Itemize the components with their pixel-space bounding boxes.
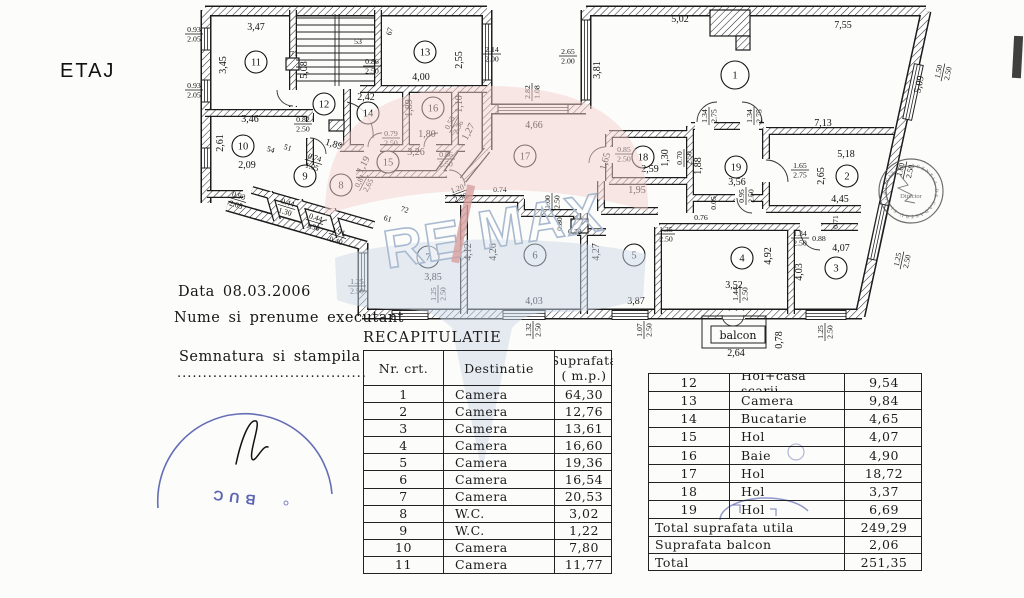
dimension-label: 0.952.50 (737, 187, 756, 205)
cell-destination: Camera (443, 454, 554, 470)
svg-text:3,47: 3,47 (247, 22, 265, 33)
svg-text:5,18: 5,18 (837, 149, 855, 160)
dimension-label: 2,64 (727, 348, 745, 359)
svg-text:11: 11 (251, 58, 261, 69)
dimension-label: 1.652.75 (791, 161, 809, 180)
wall-notch (736, 36, 750, 50)
dimension-label: 5,08 (299, 61, 310, 79)
cell-destination: Camera (443, 403, 554, 419)
dimension-label: 1,30 (660, 149, 671, 167)
cell-destination: W.C. (443, 523, 554, 539)
table-row: 15 Hol 4,07 (649, 428, 921, 446)
svg-text:1.44: 1.44 (731, 287, 740, 301)
dimension-label: 51 (283, 142, 293, 153)
dimension-label: 0.932.05 (185, 25, 203, 44)
dimension-label: 3,45 (218, 56, 229, 74)
table-row: 8 W.C. 3,02 (364, 505, 611, 522)
cell-number: 4 (364, 437, 443, 453)
dimension-label: 4,00 (412, 72, 430, 83)
table-row: 18 Hol 3,37 (649, 483, 921, 501)
dimension-label: 1.252.50 (891, 250, 913, 271)
svg-text:0.86: 0.86 (365, 57, 379, 66)
cell-number: 11 (364, 557, 443, 573)
table-row: 10 Camera 7,80 (364, 539, 611, 556)
cell-area: 16,60 (554, 437, 613, 453)
cell-number: 16 (649, 447, 729, 464)
dimension-label: 1.342.75 (700, 107, 719, 125)
svg-text:2.75: 2.75 (755, 109, 764, 123)
svg-text:3,56: 3,56 (728, 177, 746, 188)
cell-total-value: 2,06 (844, 537, 923, 553)
annex-table: 12 Hol+casa scarii 9,54 13 Camera 9,84 1… (648, 373, 922, 571)
svg-text:Director: Director (900, 193, 922, 200)
cell-area: 7,80 (554, 540, 613, 556)
dimension-label: 1.072.50 (635, 321, 654, 339)
table-row: 9 W.C. 1,22 (364, 522, 611, 539)
svg-text:2.75: 2.75 (793, 171, 807, 180)
dimension-label: 5,09 (912, 75, 926, 94)
svg-text:2.50: 2.50 (826, 325, 835, 339)
dimension-label: 4,07 (832, 243, 850, 254)
dimension-label: 2,09 (238, 160, 256, 171)
svg-text:3,45: 3,45 (218, 56, 229, 74)
cell-number: 15 (649, 428, 729, 445)
cell-number: 13 (649, 392, 729, 409)
svg-text:2.50: 2.50 (793, 239, 807, 248)
svg-text:2.05: 2.05 (187, 35, 201, 44)
svg-text:51: 51 (283, 142, 293, 153)
svg-text:BUC: BUC (206, 487, 256, 509)
dimension-label: 4,92 (763, 247, 774, 265)
svg-text:4,45: 4,45 (831, 194, 849, 205)
signature-dots: ..................................... (177, 366, 367, 381)
table-row: 2 Camera 12,76 (364, 402, 611, 419)
dimension-label: 0.88 (812, 234, 826, 243)
total-row: Total suprafata utila 249,29 (649, 519, 921, 536)
svg-text:13: 13 (420, 48, 431, 59)
svg-text:4,07: 4,07 (832, 243, 850, 254)
recap-table: Nr. crt. Destinatie Suprafata ( m.p.) 1 … (363, 350, 612, 574)
dimension-label: 54 (266, 144, 276, 155)
cell-destination: Baie (729, 447, 844, 464)
svg-text:2.14: 2.14 (485, 45, 499, 54)
svg-text:0.93: 0.93 (187, 81, 201, 90)
svg-text:2.00: 2.00 (561, 57, 575, 66)
dimension-label: 71 (290, 49, 298, 58)
header-suprafata-line1: Suprafata (554, 353, 613, 368)
cell-number: 1 (364, 386, 443, 402)
svg-text:1.34: 1.34 (793, 229, 807, 238)
svg-text:7,13: 7,13 (814, 118, 832, 129)
svg-text:3,46: 3,46 (241, 114, 259, 125)
dimension-label: 1.502.50 (932, 62, 954, 83)
dimension-label: 2,61 (215, 134, 226, 152)
svg-text:3,81: 3,81 (592, 61, 603, 79)
svg-text:5,02: 5,02 (671, 14, 689, 25)
dimension-label: 5,18 (837, 149, 855, 160)
svg-text:12: 12 (319, 100, 330, 111)
cell-number: 19 (649, 501, 729, 518)
table-row: 3 Camera 13,61 (364, 419, 611, 436)
room-number-12: 12 (313, 93, 335, 115)
cell-area: 1,22 (554, 523, 613, 539)
dimension-label: 5,02 (671, 14, 689, 25)
cell-number: 12 (649, 374, 729, 391)
cell-destination: Camera (443, 557, 554, 573)
svg-text:53: 53 (354, 37, 362, 46)
dimension-label: 3,46 (241, 114, 259, 125)
table-row: 6 Camera 16,54 (364, 470, 611, 487)
svg-text:54: 54 (266, 144, 276, 155)
svg-text:19: 19 (731, 163, 742, 174)
handwritten-signature (236, 421, 268, 464)
cell-area: 13,61 (554, 420, 613, 436)
dimension-label: 1.342.50 (791, 229, 809, 248)
dimension-label: 1.322.50 (524, 321, 543, 339)
svg-text:4,00: 4,00 (412, 72, 430, 83)
cell-area: 19,36 (554, 454, 613, 470)
room-number-13: 13 (414, 41, 436, 63)
cell-number: 7 (364, 489, 443, 505)
svg-text:2,61: 2,61 (215, 134, 226, 152)
cell-number: 5 (364, 454, 443, 470)
cell-area: 12,76 (554, 403, 613, 419)
cell-destination: Bucatarie (729, 410, 844, 427)
svg-text:1.65: 1.65 (793, 161, 807, 170)
svg-text:2.50: 2.50 (741, 287, 750, 301)
svg-text:2.50: 2.50 (645, 323, 654, 337)
svg-text:4,92: 4,92 (763, 247, 774, 265)
svg-text:0.82: 0.82 (296, 115, 310, 124)
annex-table-body: 12 Hol+casa scarii 9,54 13 Camera 9,84 1… (649, 374, 921, 519)
cell-destination: Camera (443, 489, 554, 505)
cell-number: 6 (364, 471, 443, 487)
svg-text:4,03: 4,03 (794, 263, 805, 281)
svg-text:2,55: 2,55 (454, 51, 465, 69)
dimension-label: 4,45 (831, 194, 849, 205)
dimension-label: 53 (354, 37, 362, 46)
cell-area: 4,07 (844, 428, 923, 445)
svg-text:0.05: 0.05 (709, 196, 718, 210)
total-row: Total 251,35 (649, 554, 921, 570)
cell-area: 16,54 (554, 471, 613, 487)
dimension-label: 1.442.50 (731, 285, 750, 303)
cell-destination: Camera (443, 420, 554, 436)
dimension-label: 2,42 (357, 92, 375, 103)
cell-destination: Camera (443, 471, 554, 487)
svg-text:9: 9 (302, 172, 307, 183)
room-number-11: 11 (245, 51, 267, 73)
table-row: 17 Hol 18,72 (649, 465, 921, 483)
table-row: 16 Baie 4,90 (649, 447, 921, 465)
cell-total-label: Total (649, 554, 844, 570)
cell-area: 9,84 (844, 392, 923, 409)
cell-area: 11,77 (554, 557, 613, 573)
svg-text:2.50: 2.50 (942, 66, 954, 81)
cell-destination: Camera (443, 437, 554, 453)
svg-text:2.50: 2.50 (659, 235, 673, 244)
svg-text:1,88: 1,88 (693, 157, 704, 175)
wall-pier (329, 120, 344, 131)
room-number-10: 10 (232, 135, 254, 157)
svg-text:10: 10 (238, 142, 249, 153)
dimension-label: 72 (400, 204, 410, 215)
cell-destination: Camera (729, 392, 844, 409)
svg-text:1.25: 1.25 (816, 325, 825, 339)
cell-destination: Hol (729, 483, 844, 500)
room-number-1: 1 (721, 61, 749, 89)
svg-text:1.32: 1.32 (524, 323, 533, 337)
cell-destination: Hol (729, 501, 844, 518)
table-row: 14 Bucatarie 4,65 (649, 410, 921, 428)
svg-text:0.70: 0.70 (675, 151, 684, 165)
svg-text:1.34: 1.34 (700, 109, 709, 123)
cell-destination: Camera (443, 386, 554, 402)
cell-destination: W.C. (443, 506, 554, 522)
svg-text:0.95: 0.95 (737, 189, 746, 203)
cell-area: 18,72 (844, 465, 923, 482)
room-number-2: 2 (836, 165, 858, 187)
dimension-label: 1,88 (693, 157, 704, 175)
svg-text:71: 71 (290, 49, 298, 58)
cell-number: 2 (364, 403, 443, 419)
cell-number: 3 (364, 420, 443, 436)
svg-text:2.50: 2.50 (901, 254, 913, 269)
recap-table-title: RECAPITULATIE (363, 330, 502, 346)
dimension-label: 0.702.50 (675, 149, 694, 167)
room-number-4: 4 (731, 247, 753, 269)
svg-text:67: 67 (384, 26, 395, 36)
svg-text:2.50: 2.50 (296, 125, 310, 134)
balcony: balcon (702, 316, 766, 348)
date-line: Data 08.03.2006 (178, 284, 311, 300)
cell-destination: Hol (729, 428, 844, 445)
table-row: 5 Camera 19,36 (364, 453, 611, 470)
svg-text:2,65: 2,65 (816, 167, 827, 185)
annex-table-totals: Total suprafata utila 249,29 Suprafata b… (649, 519, 921, 570)
dimension-label: 2,65 (816, 167, 827, 185)
dimension-label: 3,56 (728, 177, 746, 188)
svg-text:3: 3 (833, 264, 838, 275)
recap-table-body: 1 Camera 64,30 2 Camera 12,76 3 Camera 1… (364, 386, 611, 573)
dimension-label: 4,03 (794, 263, 805, 281)
dimension-label: 1.352.50 (657, 225, 675, 244)
table-row: 4 Camera 16,60 (364, 436, 611, 453)
cell-area: 64,30 (554, 386, 613, 402)
svg-text:0.71: 0.71 (831, 215, 840, 229)
svg-text:1.07: 1.07 (635, 323, 644, 337)
dimension-label: 1.342.75 (745, 107, 764, 125)
svg-text:2.50: 2.50 (534, 323, 543, 337)
svg-text:0,78: 0,78 (774, 331, 785, 349)
cell-total-label: Suprafata balcon (649, 537, 844, 553)
cell-area: 9,54 (844, 374, 923, 391)
cell-total-label: Total suprafata utila (649, 519, 844, 535)
cell-destination: Camera (443, 540, 554, 556)
cell-area: 6,69 (844, 501, 923, 518)
svg-text:1.34: 1.34 (745, 109, 754, 123)
table-row: 19 Hol 6,69 (649, 501, 921, 519)
dimension-label: 2,55 (454, 51, 465, 69)
wall-notch (710, 10, 750, 36)
watermark-re: RE (380, 209, 467, 281)
total-row: Suprafata balcon 2,06 (649, 537, 921, 554)
svg-text:5,09: 5,09 (912, 75, 926, 94)
svg-text:2.50: 2.50 (365, 67, 379, 76)
dimension-label: 0.822.50 (294, 115, 312, 134)
cell-area: 3,02 (554, 506, 613, 522)
table-row: 7 Camera 20,53 (364, 488, 611, 505)
dimension-label: 1.252.50 (816, 323, 835, 341)
dimension-label: 67 (384, 26, 395, 36)
svg-text:7,55: 7,55 (834, 20, 852, 31)
header-suprafata-line2: ( m.p.) (561, 368, 606, 383)
dimension-label: 7,55 (834, 20, 852, 31)
svg-text:1: 1 (732, 71, 737, 82)
header-destinatie: Destinatie (443, 351, 554, 385)
cell-number: 8 (364, 506, 443, 522)
cell-destination: Hol+casa scarii (729, 374, 844, 391)
svg-text:2.00: 2.00 (485, 55, 499, 64)
svg-text:2: 2 (844, 172, 849, 183)
recap-table-header: Nr. crt. Destinatie Suprafata ( m.p.) (364, 351, 611, 386)
cell-number: 9 (364, 523, 443, 539)
dimension-label: 0.05 (709, 196, 718, 210)
table-row: 12 Hol+casa scarii 9,54 (649, 374, 921, 392)
header-suprafata: Suprafata ( m.p.) (554, 351, 613, 385)
cell-number: 10 (364, 540, 443, 556)
scanned-floor-plan-page: ETAJ (0, 0, 1024, 598)
balcony-label: balcon (720, 329, 757, 342)
table-row: 1 Camera 64,30 (364, 386, 611, 402)
dimension-label: 7,13 (814, 118, 832, 129)
svg-text:0.88: 0.88 (812, 234, 826, 243)
room-number-3: 3 (825, 257, 847, 279)
svg-text:2.75: 2.75 (710, 109, 719, 123)
cell-area: 3,37 (844, 483, 923, 500)
svg-text:0.93: 0.93 (187, 25, 201, 34)
svg-text:4: 4 (739, 254, 745, 265)
svg-text:2,64: 2,64 (727, 348, 745, 359)
executant-line: Nume si prenume executant (174, 310, 404, 326)
svg-text:5,08: 5,08 (299, 61, 310, 79)
svg-text:1,30: 1,30 (660, 149, 671, 167)
dimension-label: 0.862.50 (363, 57, 381, 76)
svg-text:72: 72 (400, 204, 410, 215)
svg-text:2.65: 2.65 (561, 47, 575, 56)
cell-area: 4,90 (844, 447, 923, 464)
dimension-label: 0.76 (694, 213, 708, 222)
svg-text:2.50: 2.50 (747, 189, 756, 203)
cell-destination: Hol (729, 465, 844, 482)
room-number-19: 19 (725, 156, 747, 178)
cell-total-value: 249,29 (844, 519, 923, 535)
svg-text:2,09: 2,09 (238, 160, 256, 171)
table-row: 13 Camera 9,84 (649, 392, 921, 410)
dimension-label: 0.932.05 (185, 81, 203, 100)
dimension-label: 2.142.00 (483, 45, 501, 64)
table-row: 11 Camera 11,77 (364, 556, 611, 573)
blue-ink-stamp: BUC (158, 414, 332, 509)
dimension-label: 2.652.00 (559, 47, 577, 66)
dimension-label: 3,47 (247, 22, 265, 33)
cell-total-value: 251,35 (844, 554, 923, 570)
cell-area: 20,53 (554, 489, 613, 505)
svg-text:2,42: 2,42 (357, 92, 375, 103)
cell-number: 17 (649, 465, 729, 482)
cell-number: 14 (649, 410, 729, 427)
dimension-label: 0.71 (831, 215, 840, 229)
cell-area: 4,65 (844, 410, 923, 427)
svg-text:1.35: 1.35 (659, 225, 673, 234)
header-nr: Nr. crt. (364, 351, 443, 385)
svg-text:0.76: 0.76 (694, 213, 708, 222)
signature-line: Semnatura si stampila (179, 349, 361, 365)
dimension-label: 0,78 (774, 331, 785, 349)
dimension-label: 3,81 (592, 61, 603, 79)
cell-number: 18 (649, 483, 729, 500)
scan-edge-artifact (1012, 36, 1023, 78)
svg-text:2.05: 2.05 (187, 91, 201, 100)
